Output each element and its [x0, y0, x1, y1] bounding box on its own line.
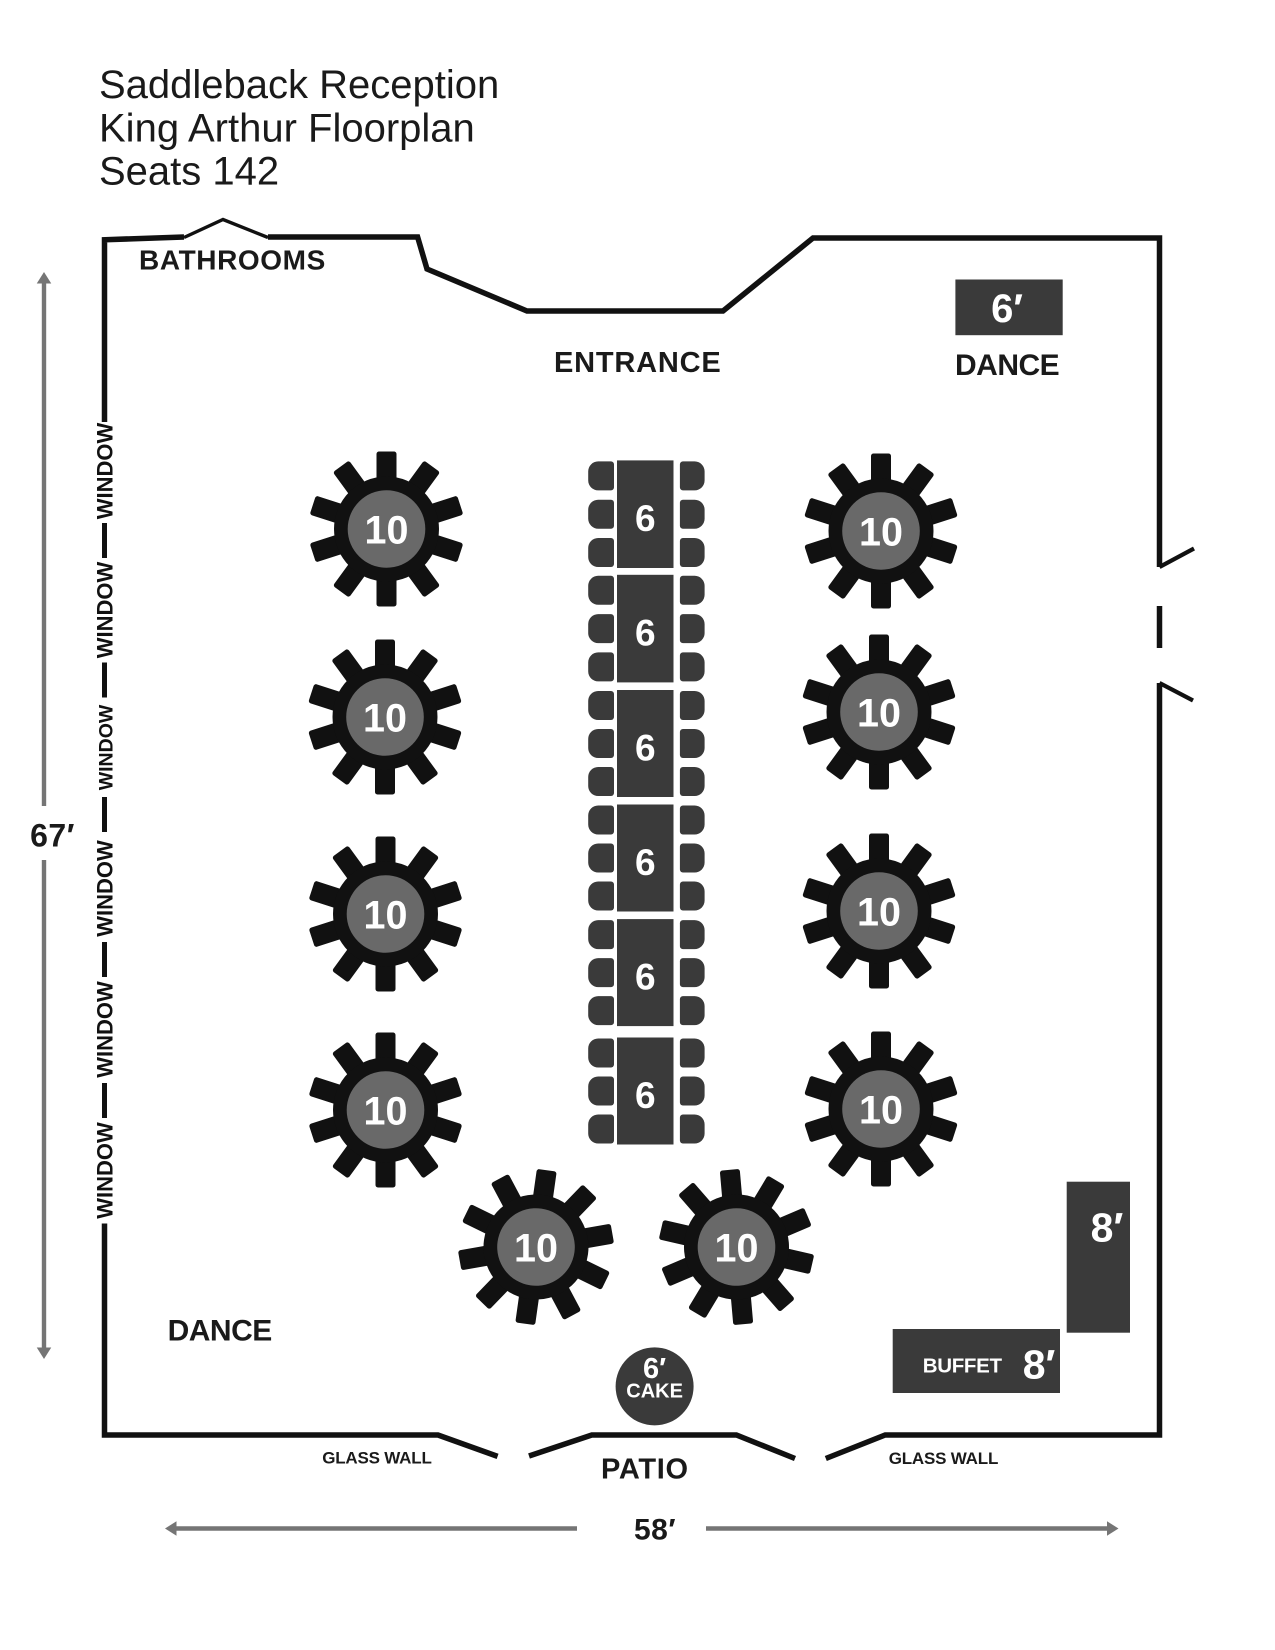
svg-text:CAKE: CAKE: [626, 1381, 683, 1403]
svg-text:10: 10: [364, 1090, 408, 1134]
svg-text:6: 6: [635, 957, 656, 998]
svg-text:6′: 6′: [991, 287, 1023, 331]
svg-text:WINDOW: WINDOW: [92, 423, 117, 520]
svg-text:10: 10: [365, 509, 409, 553]
svg-text:ENTRANCE: ENTRANCE: [554, 347, 722, 379]
svg-text:Seats 142: Seats 142: [99, 150, 279, 194]
svg-text:GLASS WALL: GLASS WALL: [322, 1448, 431, 1467]
svg-text:WINDOW: WINDOW: [95, 704, 117, 790]
svg-text:6: 6: [635, 842, 656, 883]
svg-text:BATHROOMS: BATHROOMS: [139, 245, 326, 276]
svg-text:King Arthur Floorplan: King Arthur Floorplan: [99, 106, 475, 150]
svg-text:6: 6: [635, 728, 656, 769]
svg-text:58′: 58′: [634, 1514, 676, 1547]
svg-text:10: 10: [715, 1227, 759, 1271]
svg-text:6: 6: [635, 613, 656, 654]
svg-text:Saddleback Reception: Saddleback Reception: [99, 63, 499, 107]
svg-text:GLASS WALL: GLASS WALL: [889, 1449, 998, 1468]
svg-text:WINDOW: WINDOW: [92, 840, 117, 937]
svg-text:10: 10: [363, 697, 407, 741]
svg-text:BUFFET: BUFFET: [923, 1355, 1003, 1378]
svg-text:6: 6: [635, 1075, 656, 1116]
svg-text:10: 10: [859, 511, 903, 555]
svg-text:DANCE: DANCE: [168, 1314, 272, 1347]
svg-text:PATIO: PATIO: [601, 1453, 689, 1485]
svg-text:WINDOW: WINDOW: [92, 562, 117, 659]
svg-text:8′: 8′: [1091, 1205, 1124, 1251]
svg-text:6: 6: [635, 498, 656, 539]
svg-text:67′: 67′: [30, 818, 75, 854]
svg-text:WINDOW: WINDOW: [92, 981, 117, 1078]
svg-text:8′: 8′: [1023, 1341, 1056, 1387]
svg-text:10: 10: [857, 891, 901, 935]
svg-text:10: 10: [857, 692, 901, 736]
svg-text:WINDOW: WINDOW: [92, 1122, 117, 1219]
svg-text:10: 10: [364, 894, 408, 938]
svg-text:DANCE: DANCE: [955, 349, 1059, 382]
svg-text:10: 10: [514, 1227, 558, 1271]
svg-text:10: 10: [859, 1089, 903, 1133]
